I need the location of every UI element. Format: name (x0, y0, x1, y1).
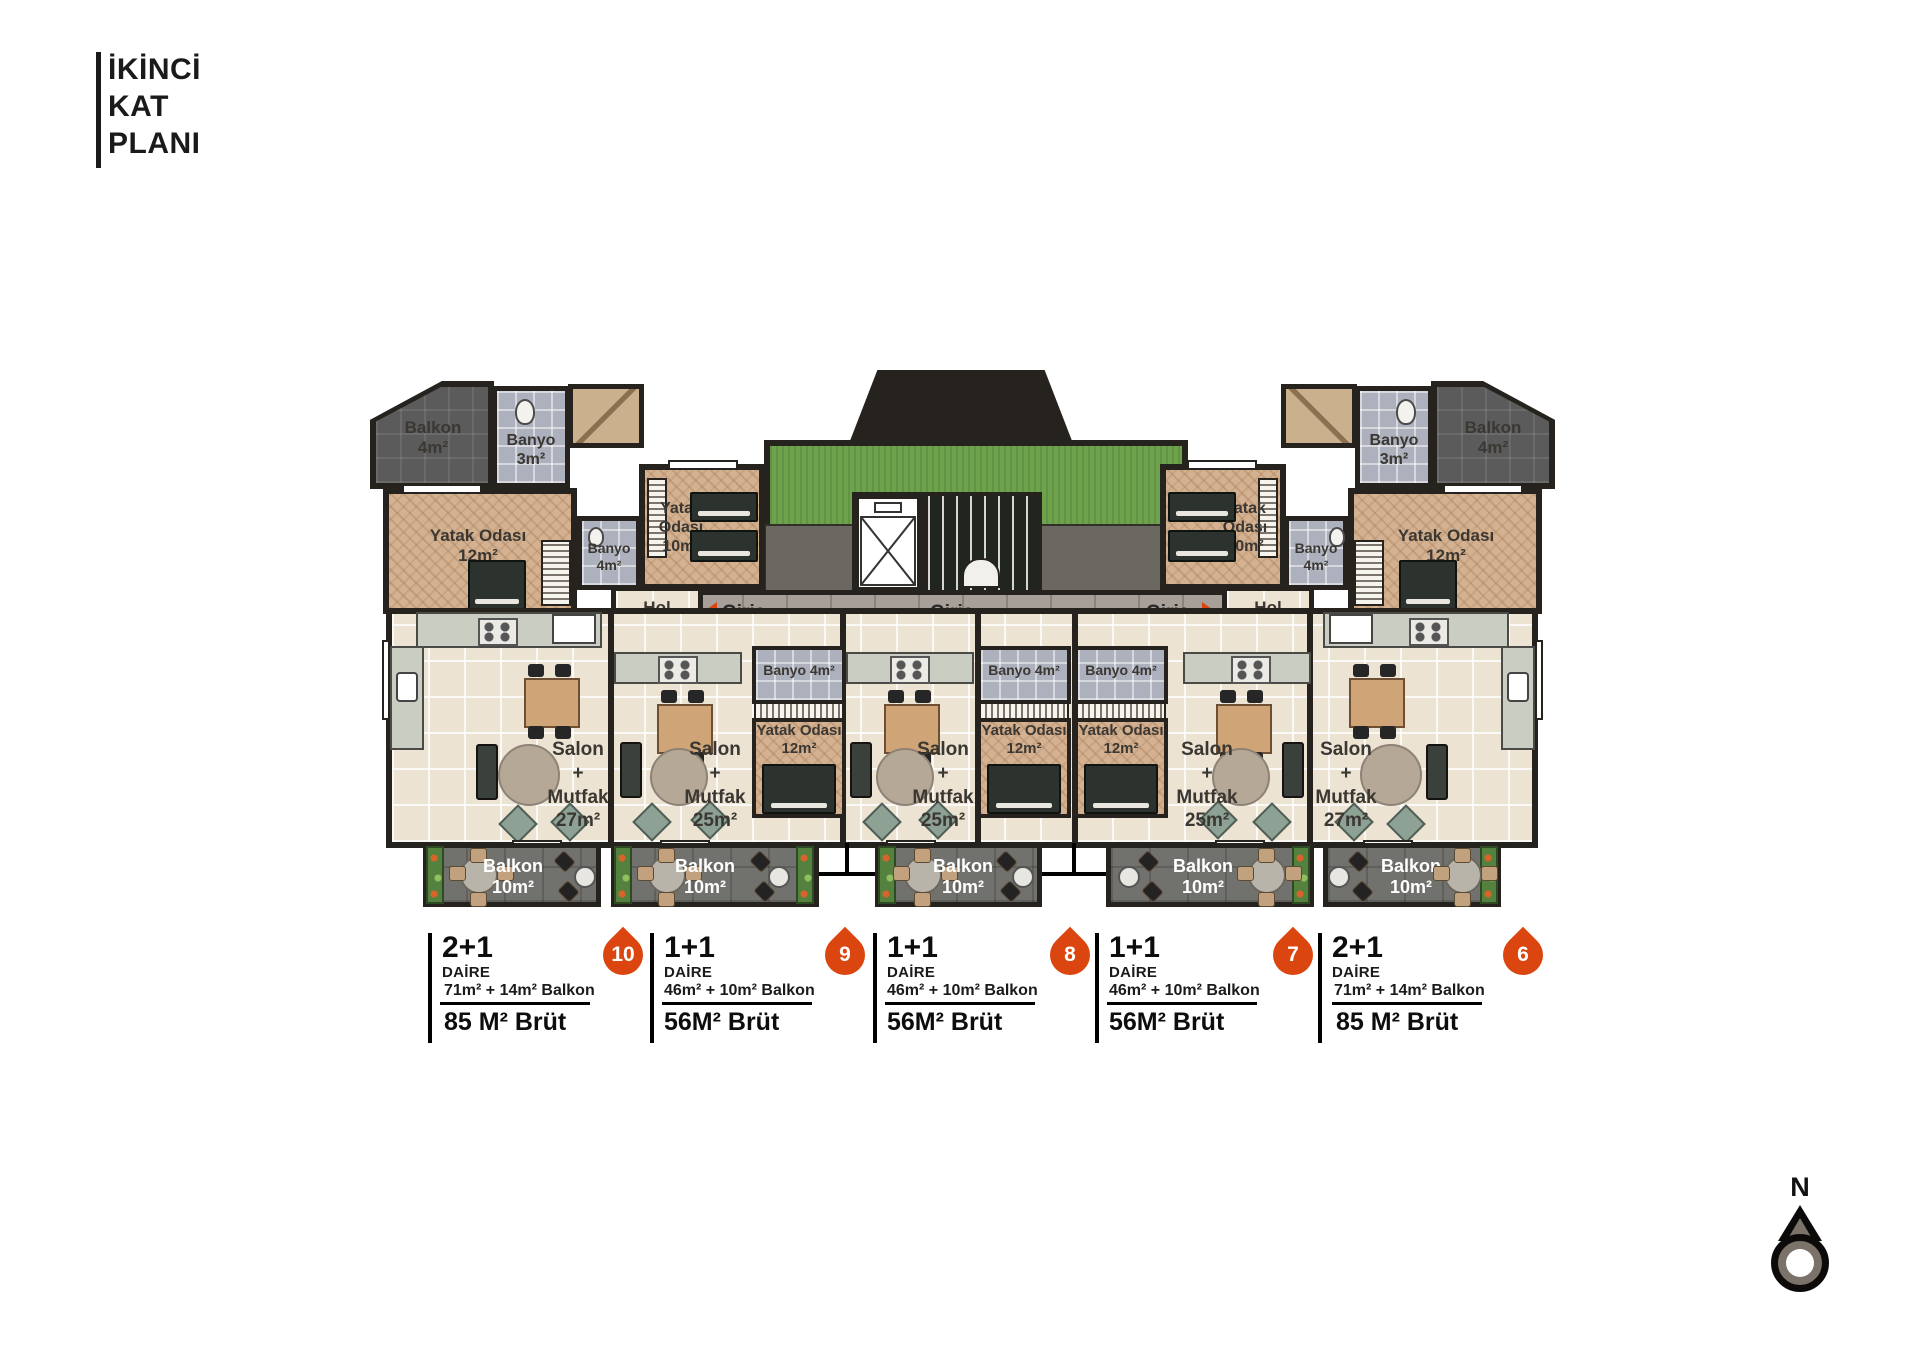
unit-badge-9: 9 (817, 927, 874, 984)
legend-divider (873, 933, 877, 1043)
patio-side-table (574, 866, 596, 888)
sink-icon (396, 672, 418, 702)
compass-icon (1771, 1234, 1829, 1292)
patio-chair (1285, 866, 1302, 881)
wardrobe-right (1354, 540, 1384, 606)
bed-unit7 (1084, 764, 1158, 814)
legend-rule (440, 1002, 590, 1005)
patio-side-table (768, 866, 790, 888)
legend-divider (1095, 933, 1099, 1043)
room-label-salon-unit8: Salon+ Mutfak25m² (888, 738, 998, 833)
room-label-balkon-unit7: Balkon10m² (1158, 856, 1248, 898)
patio-side-table (1328, 866, 1350, 888)
floor-plan-page: İKİNCİ KAT PLANI Giriş Giriş Giriş Balko… (0, 0, 1920, 1357)
room-label-banyo4-left: Banyo 4m² (578, 540, 640, 573)
shower-left (568, 384, 644, 448)
window (1535, 640, 1543, 720)
legend-gross-4: 56M² Brüt (1109, 1010, 1224, 1035)
legend-category-4: DAİRE (1109, 964, 1157, 981)
room-label-banyo-top-left: Banyo 3m² (494, 432, 568, 470)
page-title-line1: İKİNCİ (108, 55, 201, 85)
window (1443, 484, 1523, 494)
stove-icon (1409, 618, 1449, 646)
room-label-banyo-unit8: Banyo 4m² (977, 662, 1071, 679)
unit-badge-8: 8 (1042, 927, 1099, 984)
sink-icon (1507, 672, 1529, 702)
patio-chair (1258, 848, 1275, 863)
unit-badge-7: 7 (1265, 927, 1322, 984)
room-label-salon-unit6: Salon+ Mutfak27m² (1286, 738, 1406, 833)
bed-unit9 (762, 764, 836, 814)
legend-rule (1332, 1002, 1482, 1005)
balcony-gap-line (845, 843, 849, 876)
room-label-salon-unit7: Salon+ Mutfak25m² (1152, 738, 1262, 833)
stove-icon (658, 656, 698, 684)
twin-bed-2-right (1168, 530, 1236, 562)
page-title-line2: KAT (108, 92, 169, 122)
planter (426, 846, 444, 904)
legend-rule (885, 1002, 1035, 1005)
patio-side-table (1118, 866, 1140, 888)
fridge-unit6 (1329, 614, 1373, 644)
legend-divider (428, 933, 432, 1043)
center-bay-structure (848, 370, 1074, 446)
legend-area-5: 71m² + 14m² Balkon (1334, 982, 1485, 1000)
unit-badge-10: 10 (595, 927, 652, 984)
window (382, 640, 390, 720)
north-label: N (1772, 1172, 1828, 1203)
legend-rule (662, 1002, 812, 1005)
room-label-balkon-top-right: Balkon 4m² (1448, 418, 1538, 458)
legend-area-4: 46m² + 10m² Balkon (1109, 982, 1260, 1000)
patio-chair (637, 866, 654, 881)
legend-type-1: 2+1 (442, 933, 493, 963)
legend-category-3: DAİRE (887, 964, 935, 981)
room-label-balkon-unit10: Balkon10m² (468, 856, 558, 898)
room-label-banyo4-right: Banyo 4m² (1285, 540, 1347, 573)
bed-master-left (468, 560, 526, 610)
stove-icon (1231, 656, 1271, 684)
window (402, 484, 482, 494)
patio-chair (1454, 848, 1471, 863)
sofa-unit10 (476, 744, 498, 800)
legend-rule (1107, 1002, 1257, 1005)
stove-icon (890, 656, 930, 684)
page-title-line3: PLANI (108, 129, 201, 159)
compass-center (1786, 1249, 1814, 1277)
sofa-unit6 (1426, 744, 1448, 800)
room-label-banyo-unit9: Banyo 4m² (752, 662, 846, 679)
terrace-left (764, 524, 856, 594)
legend-area-2: 46m² + 10m² Balkon (664, 982, 815, 1000)
patio-chair (1454, 892, 1471, 907)
patio-chair (449, 866, 466, 881)
legend-type-3: 1+1 (887, 933, 938, 963)
balcony-gap-line (1072, 843, 1076, 876)
patio-chair (1258, 892, 1275, 907)
patio-chair (1237, 866, 1254, 881)
legend-divider (1318, 933, 1322, 1043)
unit-badge-6: 6 (1495, 927, 1552, 984)
legend-category-2: DAİRE (664, 964, 712, 981)
room-label-banyo-unit7: Banyo 4m² (1074, 662, 1168, 679)
legend-type-4: 1+1 (1109, 933, 1160, 963)
shower-right (1281, 384, 1357, 448)
stairs-icon (924, 492, 1042, 594)
legend-type-2: 1+1 (664, 933, 715, 963)
legend-area-3: 46m² + 10m² Balkon (887, 982, 1038, 1000)
legend-gross-3: 56M² Brüt (887, 1010, 1002, 1035)
twin-bed-1-right (1168, 492, 1236, 522)
patio-chair (1481, 866, 1498, 881)
legend-category-1: DAİRE (442, 964, 490, 981)
fridge-unit10 (552, 614, 596, 644)
stove-icon (478, 618, 518, 646)
patio-chair (893, 866, 910, 881)
legend-gross-1: 85 M² Brüt (444, 1010, 566, 1035)
room-label-balkon-unit9: Balkon10m² (660, 856, 750, 898)
patio-chair (1433, 866, 1450, 881)
toilet-icon (1396, 399, 1416, 425)
window (1187, 460, 1257, 470)
bed-master-right (1399, 560, 1457, 610)
twin-bed-1-left (690, 492, 758, 522)
planter (614, 846, 632, 904)
legend-area-1: 71m² + 14m² Balkon (444, 982, 595, 1000)
room-label-salon-unit9: Salon+ Mutfak25m² (660, 738, 770, 833)
room-label-balkon-top-left: Balkon 4m² (388, 418, 478, 458)
planter (796, 846, 814, 904)
toilet-icon (515, 399, 535, 425)
legend-gross-2: 56M² Brüt (664, 1010, 779, 1035)
legend-type-5: 2+1 (1332, 933, 1383, 963)
bed-unit8 (987, 764, 1061, 814)
title-accent-bar (96, 52, 101, 168)
legend-category-5: DAİRE (1332, 964, 1380, 981)
legend-gross-5: 85 M² Brüt (1336, 1010, 1458, 1035)
legend-divider (650, 933, 654, 1043)
room-label-salon-unit10: Salon+ Mutfak27m² (518, 738, 638, 833)
stairs-landing (962, 558, 1000, 588)
patio-side-table (1012, 866, 1034, 888)
twin-bed-2-left (690, 530, 758, 562)
window (668, 460, 738, 470)
room-label-balkon-unit8: Balkon10m² (918, 856, 1008, 898)
sofa-unit8 (850, 742, 872, 798)
elevator-icon (852, 492, 924, 594)
room-label-banyo-top-right: Banyo 3m² (1357, 432, 1431, 470)
wardrobe-left (541, 540, 571, 606)
